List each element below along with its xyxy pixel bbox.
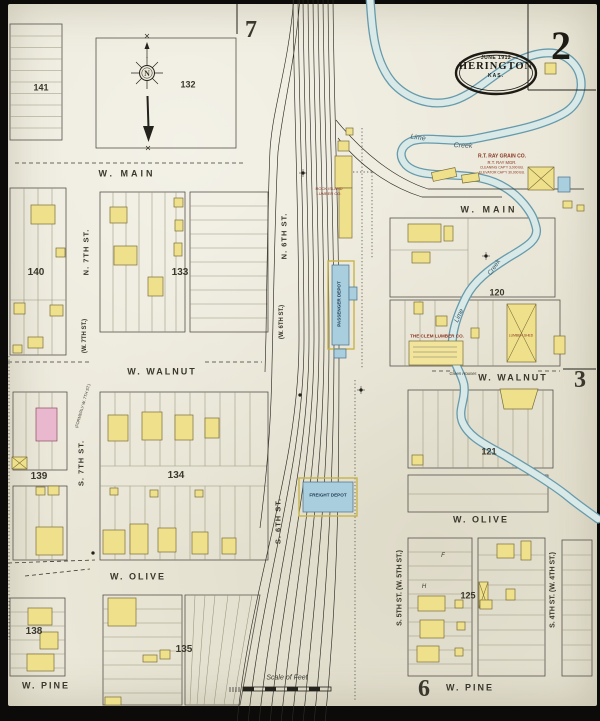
- seal-state: KAS.: [446, 73, 546, 79]
- seal-city: HERINGTON: [446, 61, 546, 73]
- sheet-number: 2: [541, 22, 581, 69]
- map-sheet: [8, 4, 597, 706]
- sanborn-map-page: 2 JUNE 1912 HERINGTON KAS. W. MAINW. MAI…: [0, 0, 600, 721]
- map-seal: JUNE 1912 HERINGTON KAS.: [446, 55, 546, 79]
